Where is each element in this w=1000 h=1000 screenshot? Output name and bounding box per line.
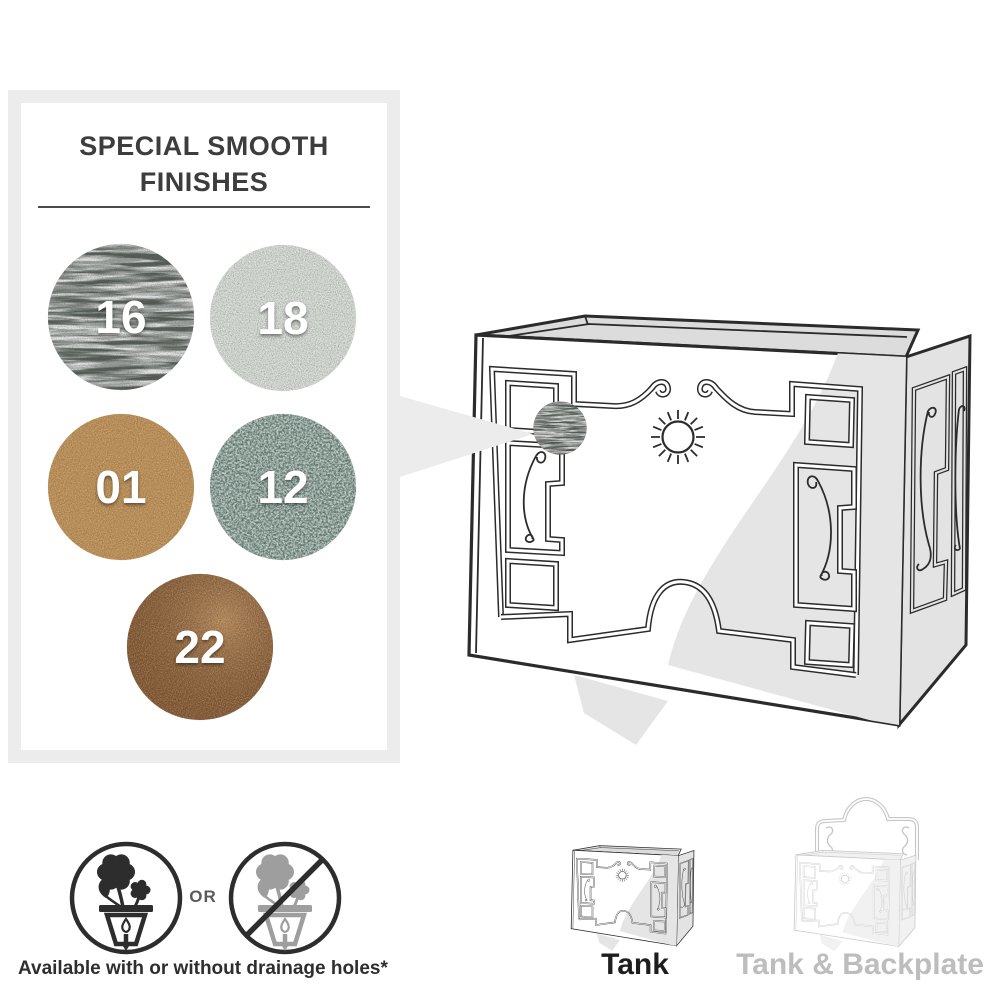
no-drainage-holes-icon — [225, 838, 345, 958]
variant-label-tank: Tank — [540, 948, 730, 982]
or-label: OR — [184, 887, 222, 907]
variant-label-tank-backplate: Tank & Backplate — [733, 948, 987, 982]
tank-variant-thumb — [571, 846, 694, 951]
drainage-holes-icon — [66, 838, 186, 958]
infographic-canvas: SPECIAL SMOOTH FINISHES 16 18 01 12 22 — [0, 0, 1000, 1000]
tank-backplate-variant-thumb — [794, 799, 917, 951]
tank-illustration — [469, 316, 970, 745]
availability-note: Available with or without drainage holes… — [18, 958, 388, 980]
